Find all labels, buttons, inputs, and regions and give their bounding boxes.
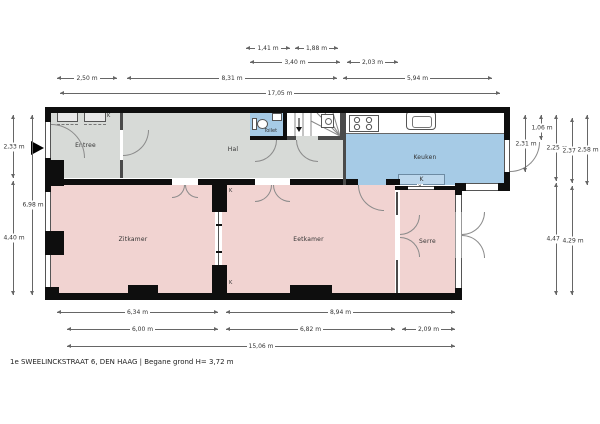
dimension-top-3c: 5,94 m [343, 78, 492, 79]
ensuite-cupboard-top [212, 185, 227, 212]
room-keuken-label: Keuken [413, 154, 436, 161]
dimension-top-2b: 2,03 m [347, 62, 398, 63]
dimension-right-5: 2,58 m [587, 115, 588, 185]
dimension-right-1: 2,31 m [525, 115, 526, 172]
wall-middle-4 [386, 179, 400, 185]
dimension-right-4b: 4,29 m [572, 186, 573, 295]
plan-caption: 1e SWEELINCKSTRAAT 6, DEN HAAG | Begane … [10, 358, 234, 366]
wall-serre-corner-bottom [455, 288, 462, 300]
closet-top-label: K [229, 189, 232, 194]
dimension-top-1a: 1,41 m [246, 48, 290, 49]
stove-icon [349, 115, 379, 132]
room-eetkamer-label: Eetkamer [293, 236, 323, 243]
sink-bowl [412, 116, 432, 128]
wall-entree-hal-top [120, 113, 123, 130]
wall-top [45, 107, 510, 113]
ensuite-sliding-doors [218, 212, 219, 265]
room-serre-label: Serre [419, 238, 436, 245]
serre-door-opening [455, 212, 462, 258]
window-kitchen-bottom [466, 183, 498, 191]
toilet-sink-icon [272, 113, 282, 121]
geyser-glyph [325, 118, 332, 125]
chimney-eetkamer [290, 285, 332, 293]
dimension-right-4a: 2,37 m [572, 118, 573, 183]
wall-middle-1 [45, 179, 172, 185]
window-serre-top [408, 186, 434, 190]
dimension-left-total: 6,98 m [32, 115, 33, 295]
wall-stairs-bottom-2 [318, 136, 340, 140]
serre-exterior-door-arc-upper [462, 212, 485, 235]
floorplan-page: Entree Hal Keuken Zitkamer Eetkamer Serr… [0, 0, 600, 424]
chimney-zitkamer [128, 285, 158, 293]
wall-eetkamer-serre-bottom [396, 260, 398, 293]
wall-pier-2 [45, 231, 64, 255]
dimension-right-3a: 2,25 m [556, 115, 557, 181]
dimension-right-3b: 4,47 m [556, 183, 557, 295]
dimension-left-1a: 2,33 m [13, 115, 14, 178]
window-left-1 [45, 192, 51, 232]
room-hal-label: Hal [228, 146, 238, 153]
wall-kitchen-left [343, 113, 346, 185]
boiler-label: K [420, 176, 424, 183]
wall-stairs-bottom-1 [287, 136, 296, 140]
dimension-left-1b: 4,40 m [13, 181, 14, 295]
ensuite-cupboard-bottom [212, 265, 227, 293]
wall-entree-hal-bottom [120, 160, 123, 178]
dimension-top-1b: 1,88 m [295, 48, 338, 49]
dimension-bottom-2a: 6,00 m [67, 329, 218, 330]
sliding-door-handle-1 [216, 224, 222, 226]
window-serre-2 [455, 258, 462, 288]
serre-exterior-door-arc-lower [462, 235, 485, 258]
room-toilet-label: Toilet [264, 129, 277, 134]
dimension-bottom-1a: 6,34 m [57, 312, 218, 313]
dimension-top-3b: 8,31 m [127, 78, 337, 79]
dimension-bottom-1b: 8,94 m [226, 312, 455, 313]
wall-eetkamer-serre-top [396, 192, 398, 215]
geyser-icon [321, 114, 334, 128]
dimension-right-2: 1,06 m [541, 115, 542, 140]
window-left-2 [45, 254, 51, 289]
room-zitkamer-label: Zitkamer [119, 236, 148, 243]
wall-pier-3 [45, 287, 59, 300]
meter-label: K [107, 114, 110, 119]
dimension-bottom-2c: 2,09 m [402, 329, 455, 330]
wall-middle-3 [290, 179, 358, 185]
sink-icon [406, 111, 436, 130]
wall-bottom [45, 293, 462, 300]
meter-dashes [84, 124, 106, 125]
dimension-top-3a: 2,50 m [57, 78, 117, 79]
dimension-bottom-2b: 6,82 m [226, 329, 395, 330]
sliding-door-handle-2 [216, 251, 222, 253]
dimension-bottom-total: 15,06 m [67, 346, 455, 347]
window-serre-1 [455, 195, 462, 212]
wall-serre-corner-top [455, 185, 462, 195]
dimension-top-2a: 3,40 m [250, 62, 340, 63]
room-zitkamer: Zitkamer [51, 185, 215, 293]
dimension-top-total: 17,05 m [60, 93, 500, 94]
closet-bottom-label: K [229, 281, 232, 286]
